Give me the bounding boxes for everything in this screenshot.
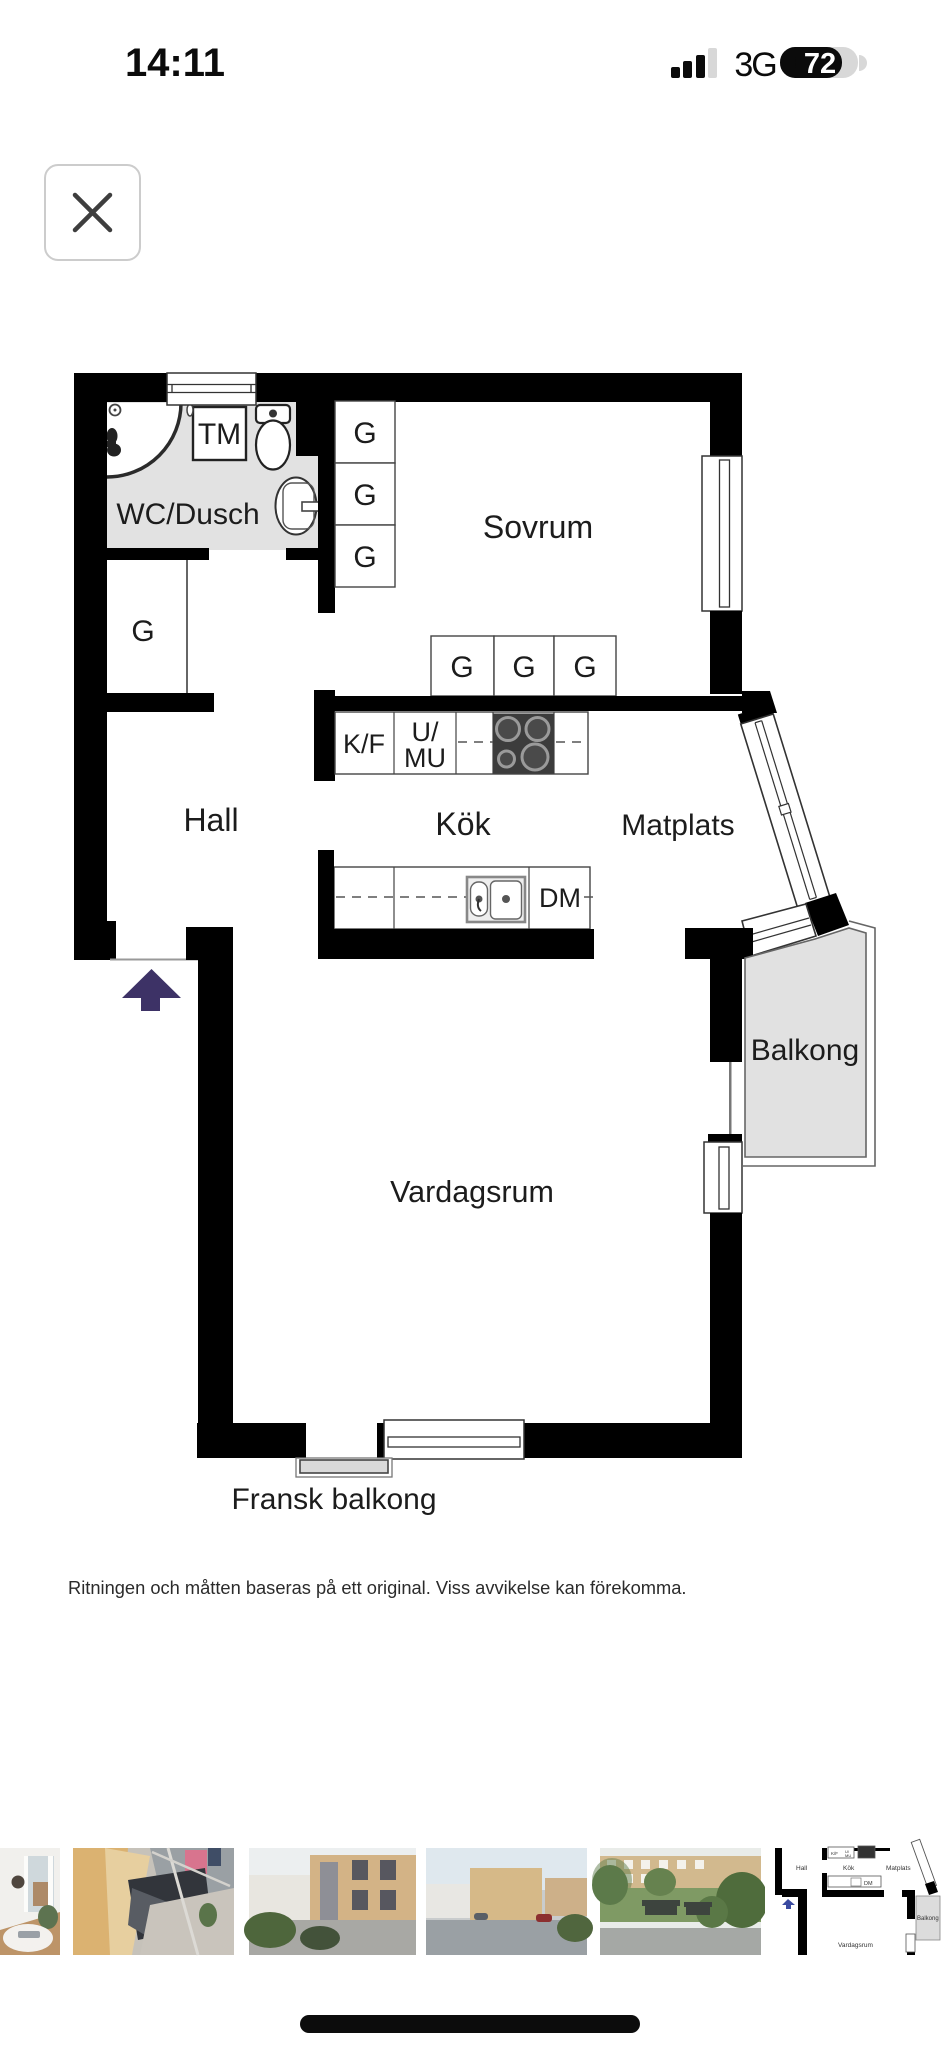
svg-text:G: G <box>353 541 376 574</box>
svg-text:Hall: Hall <box>183 802 238 838</box>
svg-text:G: G <box>131 615 154 648</box>
svg-text:Hall: Hall <box>796 1865 808 1872</box>
svg-text:MU: MU <box>404 743 446 773</box>
svg-text:Balkong: Balkong <box>751 1034 859 1067</box>
svg-text:DM: DM <box>539 883 581 913</box>
svg-text:Sovrum: Sovrum <box>483 509 593 545</box>
svg-text:K/F: K/F <box>831 1851 838 1856</box>
svg-text:Fransk balkong: Fransk balkong <box>231 1483 436 1516</box>
svg-text:TM: TM <box>198 418 241 451</box>
svg-text:K/F: K/F <box>343 729 385 759</box>
svg-text:WC/Dusch: WC/Dusch <box>116 498 259 531</box>
svg-text:G: G <box>353 417 376 450</box>
svg-text:14:11: 14:11 <box>125 41 225 85</box>
svg-text:Matplats: Matplats <box>621 809 734 842</box>
svg-text:G: G <box>353 479 376 512</box>
svg-text:Kök: Kök <box>843 1865 855 1872</box>
svg-text:72: 72 <box>804 48 836 80</box>
svg-text:Vardagsrum: Vardagsrum <box>390 1175 554 1209</box>
svg-text:G: G <box>450 651 473 684</box>
svg-text:G: G <box>573 651 596 684</box>
svg-text:Balkong: Balkong <box>917 1916 939 1922</box>
svg-text:Matplats: Matplats <box>886 1865 911 1872</box>
svg-text:G: G <box>512 651 535 684</box>
svg-text:MU: MU <box>845 1853 851 1858</box>
svg-text:3G: 3G <box>734 46 775 84</box>
svg-text:DM: DM <box>864 1881 873 1887</box>
svg-text:Vardagsrum: Vardagsrum <box>838 1942 873 1949</box>
svg-text:Kök: Kök <box>435 806 491 842</box>
svg-text:Ritningen och måtten baseras p: Ritningen och måtten baseras på ett orig… <box>68 1577 687 1598</box>
